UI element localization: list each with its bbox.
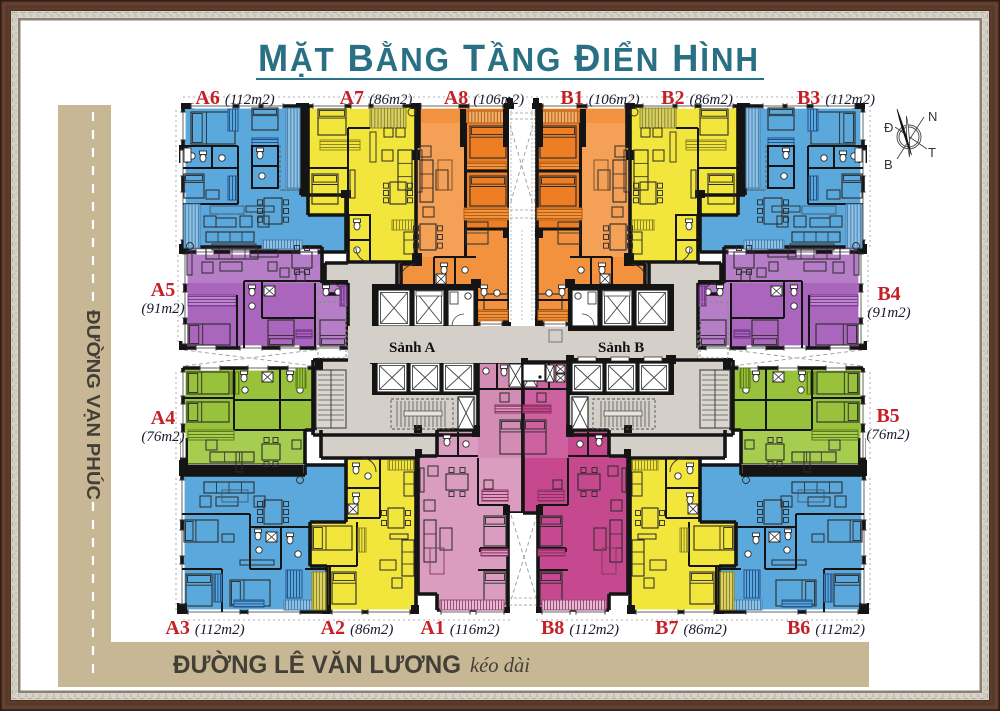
svg-text:(76m2): (76m2)	[141, 429, 184, 445]
svg-text:(91m2): (91m2)	[141, 301, 184, 317]
svg-text:(76m2): (76m2)	[866, 427, 909, 443]
svg-text:N: N	[928, 109, 937, 124]
svg-text:(91m2): (91m2)	[867, 305, 910, 321]
svg-text:B4: B4	[877, 283, 900, 305]
svg-text:Sảnh A: Sảnh A	[389, 340, 435, 356]
svg-text:A4: A4	[151, 407, 175, 429]
svg-text:B: B	[884, 157, 893, 172]
svg-text:ĐƯỜNG LÊ VĂN LƯƠNG: ĐƯỜNG LÊ VĂN LƯƠNG	[173, 649, 461, 679]
svg-text:MẶT BẰNG TẦNG ĐIỂN HÌNH: MẶT BẰNG TẦNG ĐIỂN HÌNH	[258, 38, 760, 80]
svg-text:ĐƯỜNG VẠN PHÚC: ĐƯỜNG VẠN PHÚC	[83, 310, 104, 500]
svg-text:A5: A5	[151, 279, 175, 301]
svg-text:T: T	[928, 145, 936, 160]
svg-text:Đ: Đ	[884, 120, 893, 135]
svg-text:kéo dài: kéo dài	[470, 653, 530, 677]
svg-text:B5: B5	[876, 405, 899, 427]
svg-text:Sảnh B: Sảnh B	[598, 340, 644, 356]
